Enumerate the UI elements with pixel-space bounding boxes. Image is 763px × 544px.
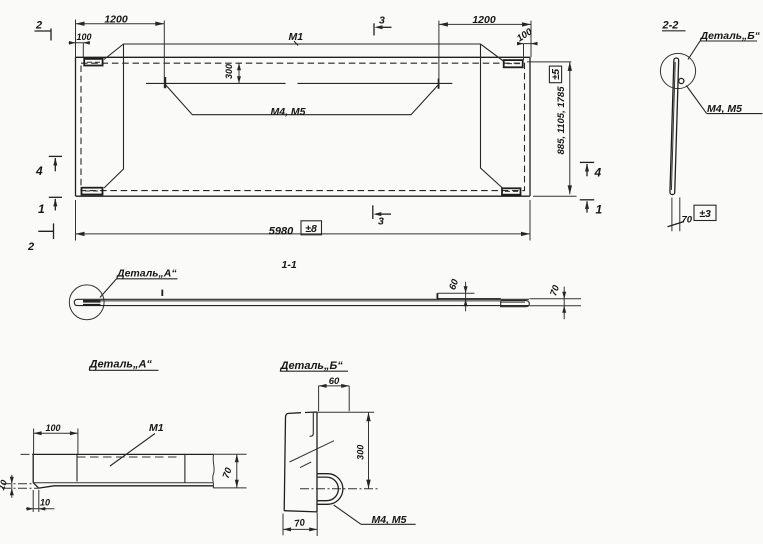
svg-text:4: 4: [35, 164, 43, 178]
svg-text:10: 10: [40, 498, 50, 508]
svg-text:М4, М5: М4, М5: [372, 514, 407, 526]
svg-text:1: 1: [596, 203, 603, 217]
svg-text:2: 2: [35, 20, 42, 32]
svg-text:2: 2: [27, 241, 34, 253]
svg-text:1-1: 1-1: [282, 259, 297, 271]
svg-text:1: 1: [38, 202, 45, 216]
svg-text:70: 70: [682, 215, 693, 226]
svg-text:100: 100: [76, 32, 91, 42]
svg-text:60: 60: [329, 376, 340, 387]
svg-text:3: 3: [379, 15, 385, 27]
svg-text:±8: ±8: [305, 223, 317, 235]
svg-text:300: 300: [224, 64, 234, 79]
svg-text:100: 100: [45, 423, 60, 433]
svg-text:4: 4: [594, 166, 602, 180]
svg-text:3: 3: [378, 216, 384, 228]
svg-text:±3: ±3: [699, 208, 711, 220]
svg-text:885, 1105, 1785: 885, 1105, 1785: [556, 86, 567, 155]
svg-text:Деталь„Б“: Деталь„Б“: [700, 30, 761, 42]
svg-text:300: 300: [356, 445, 366, 460]
svg-text:М1: М1: [149, 422, 164, 434]
svg-text:Деталь„А“: Деталь„А“: [89, 359, 153, 371]
svg-text:М4, М5: М4, М5: [707, 103, 742, 115]
svg-text:5980: 5980: [269, 226, 294, 238]
svg-text:М1: М1: [289, 31, 304, 43]
svg-text:Деталь„А“: Деталь„А“: [116, 268, 177, 280]
svg-text:±5: ±5: [551, 68, 562, 79]
svg-text:1200: 1200: [104, 14, 128, 26]
svg-text:М4, М5: М4, М5: [271, 106, 306, 118]
svg-text:2-2: 2-2: [662, 20, 679, 32]
svg-text:Деталь„Б“: Деталь„Б“: [280, 360, 344, 372]
svg-text:1200: 1200: [472, 14, 496, 26]
